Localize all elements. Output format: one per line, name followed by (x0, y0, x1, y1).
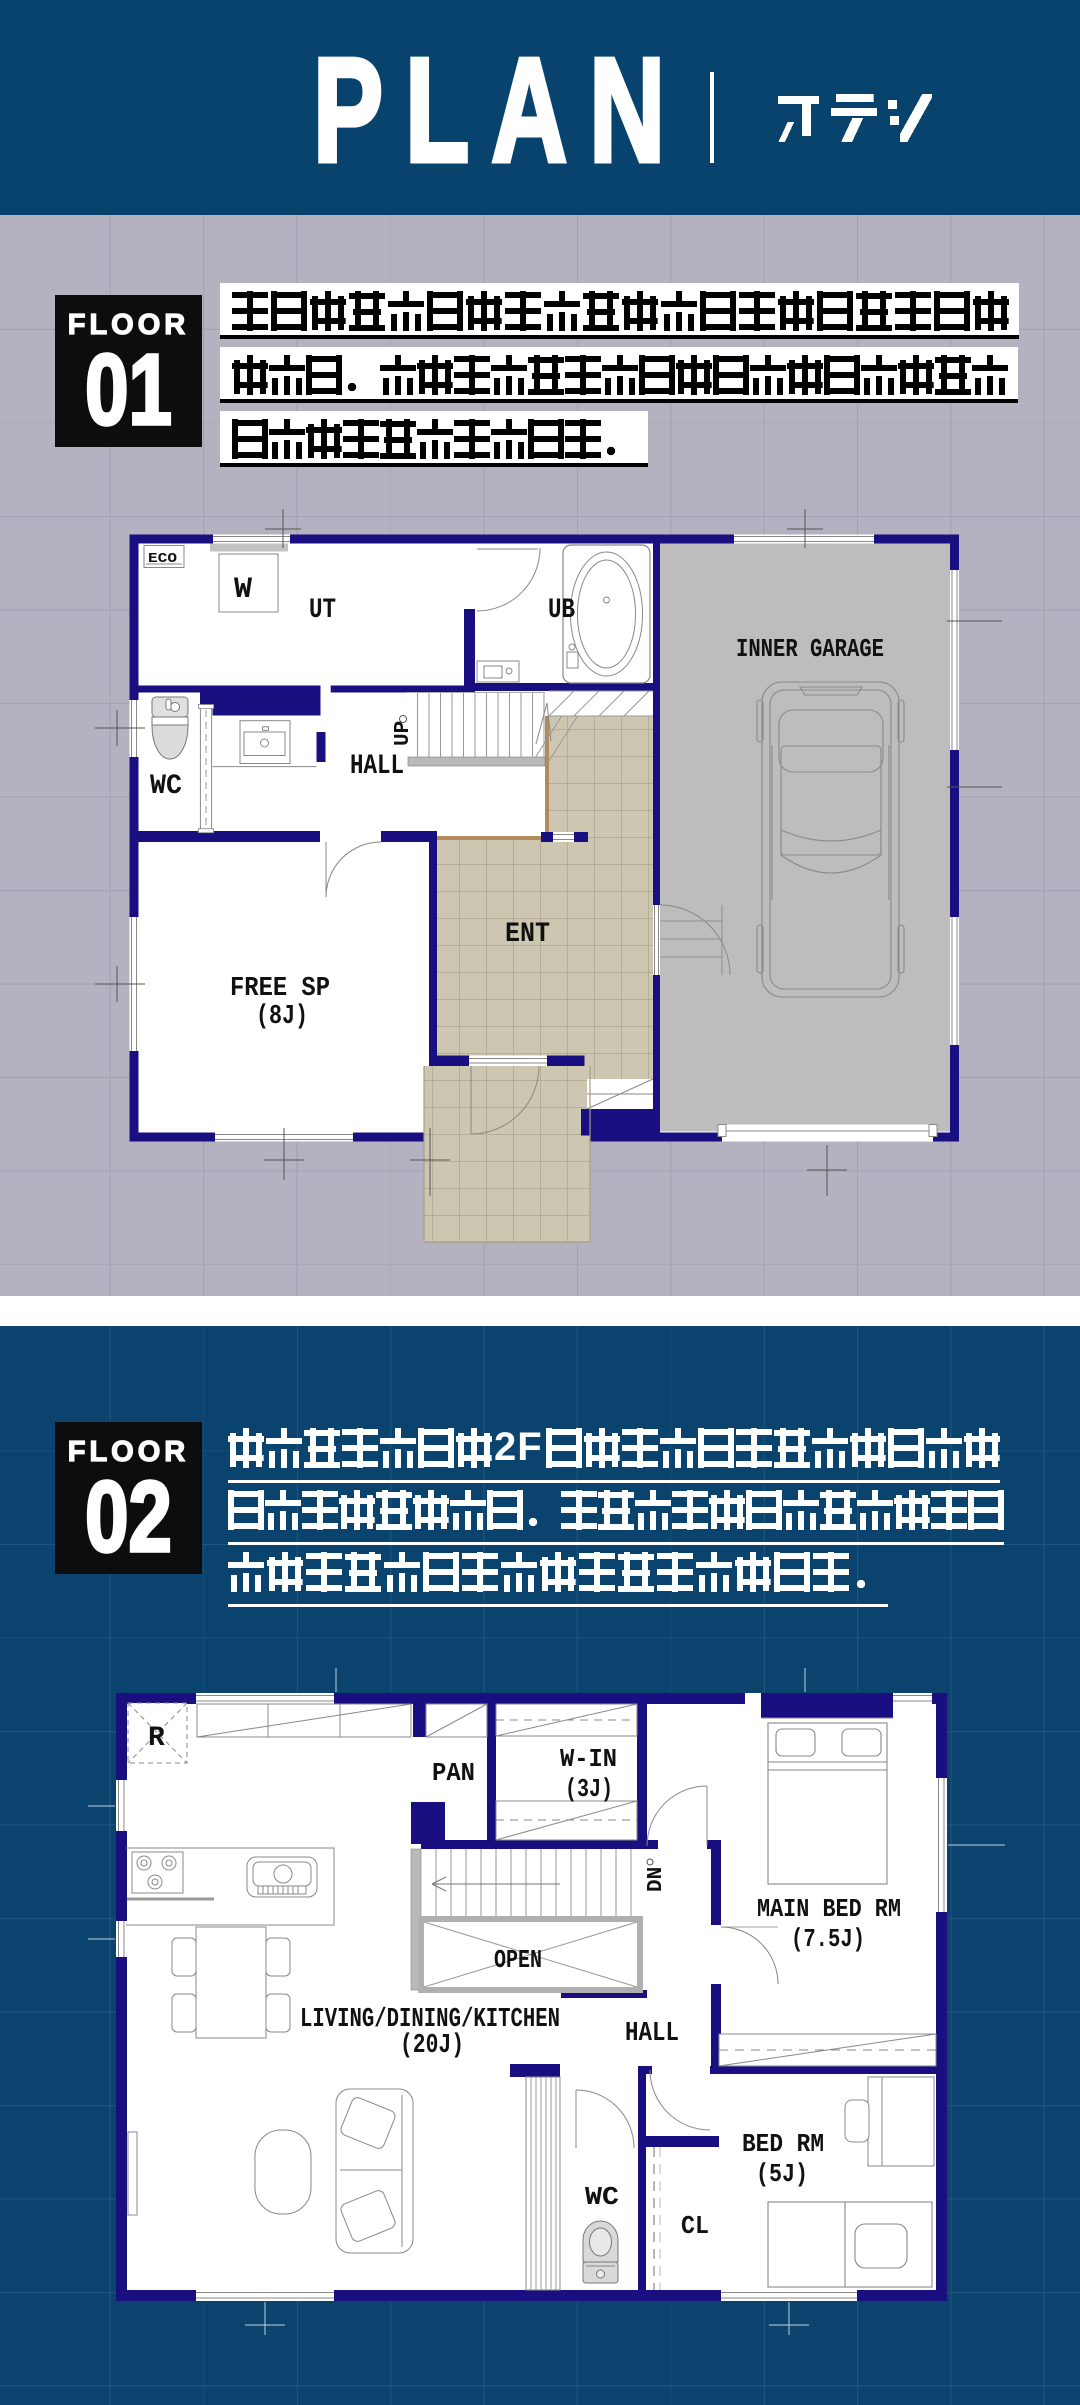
svg-text:WC: WC (150, 771, 182, 802)
svg-text:R: R (148, 1723, 165, 1754)
svg-text:W-IN: W-IN (560, 1744, 617, 1774)
svg-text:PAN: PAN (432, 1758, 475, 1788)
svg-text:MAIN BED RM: MAIN BED RM (757, 1894, 901, 1924)
svg-text:OPEN: OPEN (494, 1945, 542, 1975)
svg-text:FREE SP: FREE SP (230, 974, 330, 1004)
svg-text:HALL: HALL (350, 751, 404, 782)
svg-text:(7.5J): (7.5J) (791, 1924, 865, 1954)
svg-text:UB: UB (548, 595, 575, 626)
svg-text:ECO: ECO (148, 551, 177, 567)
svg-text:(5J): (5J) (756, 2159, 808, 2189)
svg-text:CL: CL (681, 2211, 709, 2241)
svg-text:W: W (234, 573, 252, 607)
svg-text:WC: WC (585, 2182, 619, 2212)
svg-text:BED RM: BED RM (742, 2129, 824, 2159)
svg-text:ENT: ENT (505, 919, 550, 950)
svg-text:UP: UP (392, 721, 415, 746)
svg-text:(20J): (20J) (400, 2031, 464, 2061)
svg-text:DN: DN (645, 1867, 668, 1892)
svg-text:HALL: HALL (625, 2019, 679, 2049)
svg-text:(3J): (3J) (565, 1774, 613, 1804)
svg-text:UT: UT (309, 595, 336, 626)
svg-text:(8J): (8J) (256, 1002, 308, 1032)
svg-text:INNER GARAGE: INNER GARAGE (736, 634, 884, 664)
